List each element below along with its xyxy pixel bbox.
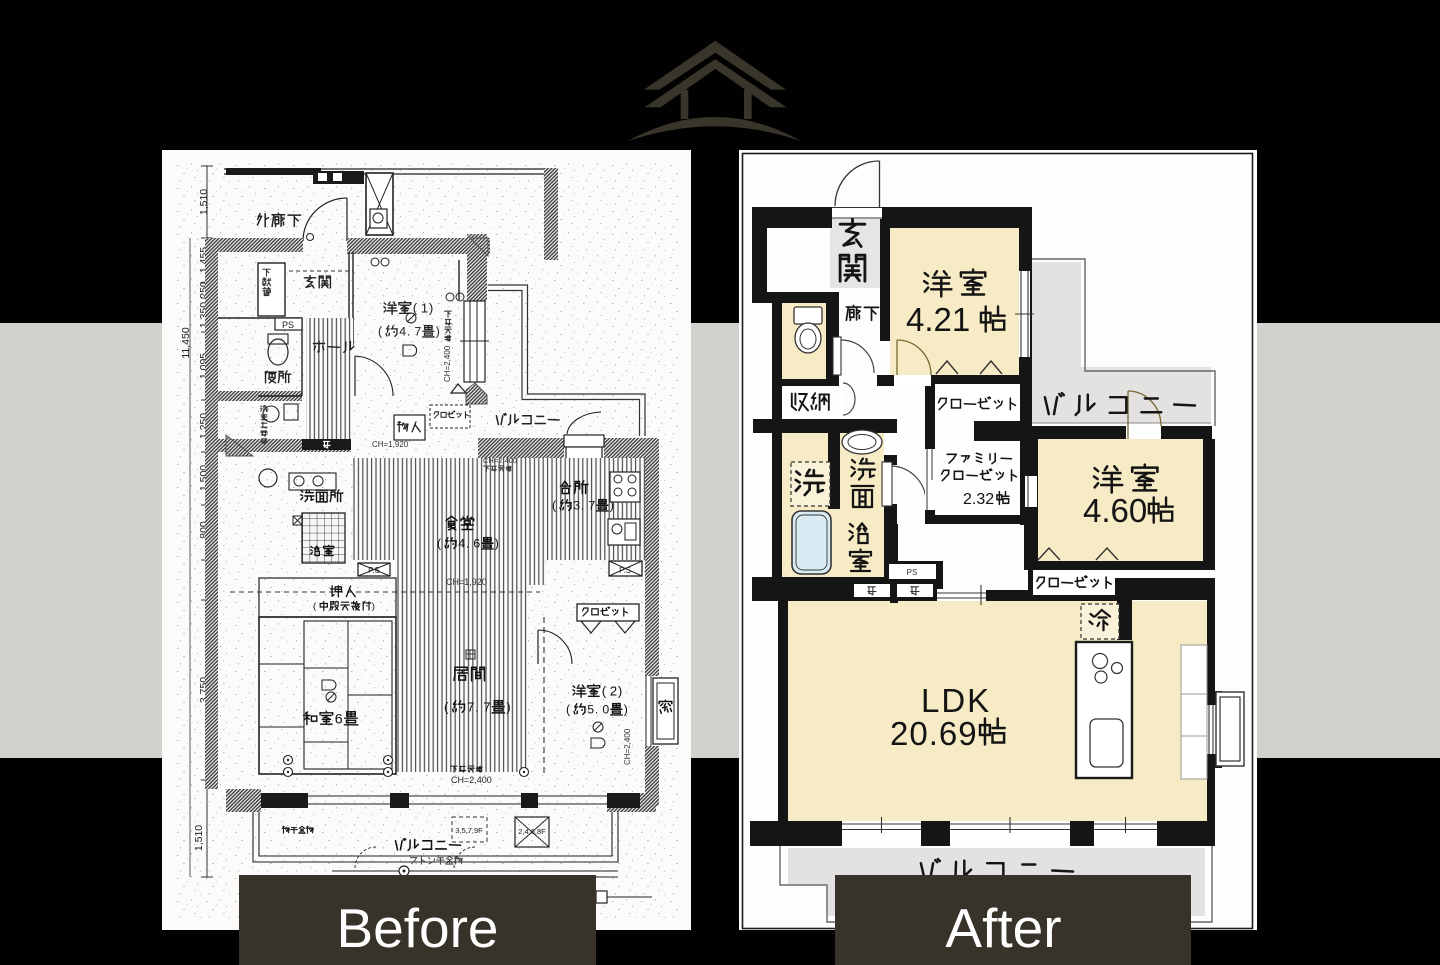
svg-text:.: .: [581, 499, 584, 513]
svg-text:): ): [506, 700, 510, 715]
svg-text:7: 7: [483, 700, 490, 715]
svg-text:.: .: [466, 537, 469, 551]
svg-text:): ): [624, 703, 628, 717]
svg-text:CH=2,400: CH=2,400: [623, 728, 632, 765]
svg-text:CH=2,400: CH=2,400: [451, 775, 492, 785]
svg-text:2: 2: [610, 684, 617, 699]
svg-text:11,450: 11,450: [180, 327, 192, 358]
svg-text:3,5,7,9F: 3,5,7,9F: [455, 826, 483, 835]
svg-text:7: 7: [467, 700, 474, 715]
svg-text:.: .: [407, 325, 410, 339]
svg-text:): ): [436, 325, 440, 339]
svg-text:): ): [618, 684, 622, 699]
svg-text:1,510: 1,510: [193, 825, 205, 851]
svg-text:CH=1,920: CH=1,920: [446, 577, 487, 587]
svg-text:4.60: 4.60: [1083, 492, 1147, 529]
svg-text:6: 6: [335, 711, 343, 727]
svg-text:LDK: LDK: [921, 682, 991, 719]
svg-text:P.S: P.S: [619, 566, 631, 575]
svg-text:): ): [372, 601, 375, 612]
svg-text:2.32: 2.32: [963, 491, 994, 508]
svg-text:P.S: P.S: [368, 566, 380, 575]
svg-text:1: 1: [421, 301, 428, 316]
svg-text:(: (: [602, 684, 607, 699]
svg-text:PS: PS: [907, 568, 918, 577]
svg-text:): ): [495, 537, 499, 551]
svg-text:PS: PS: [282, 320, 294, 330]
svg-text:5: 5: [587, 703, 594, 717]
svg-text:20.69: 20.69: [890, 715, 978, 752]
svg-text:3: 3: [573, 499, 580, 513]
svg-text:.: .: [475, 700, 479, 715]
svg-text:6: 6: [473, 537, 480, 551]
svg-text:CH=1,920: CH=1,920: [372, 440, 409, 449]
svg-text:4.21: 4.21: [906, 301, 970, 338]
svg-text:): ): [429, 301, 433, 316]
svg-text:.: .: [595, 703, 598, 717]
svg-text:7: 7: [588, 499, 595, 513]
svg-text:4: 4: [458, 537, 465, 551]
svg-text:7: 7: [414, 325, 421, 339]
svg-text:1,510: 1,510: [198, 189, 210, 215]
svg-text:CH=2,400: CH=2,400: [483, 456, 517, 465]
svg-text:CH=2,400: CH=2,400: [443, 345, 452, 382]
svg-text:(: (: [444, 700, 449, 715]
svg-text:4: 4: [399, 325, 406, 339]
svg-text:0: 0: [602, 703, 609, 717]
